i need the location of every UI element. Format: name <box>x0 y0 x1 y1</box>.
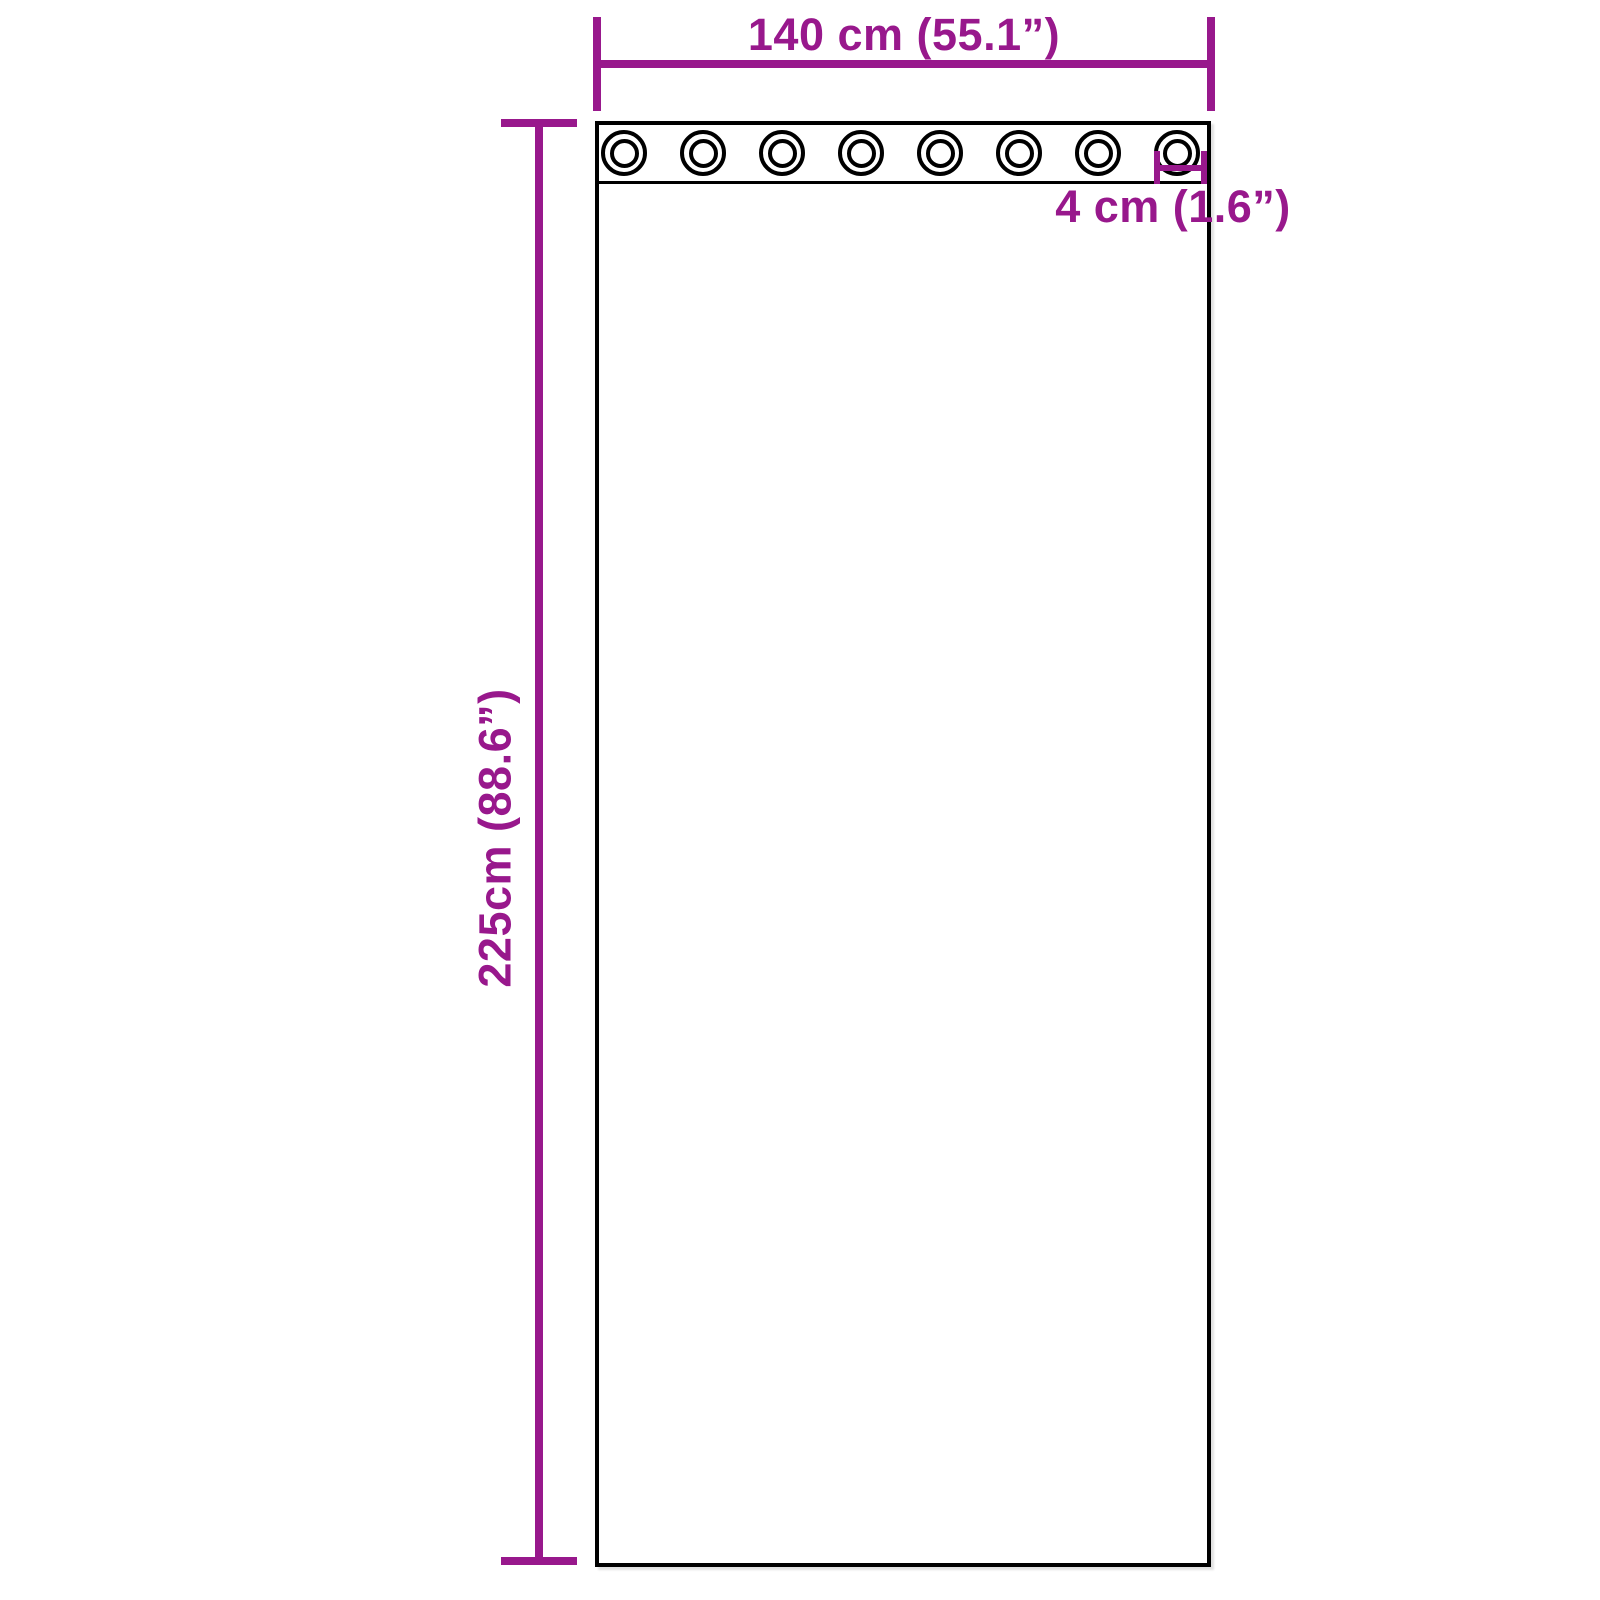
curtain-panel <box>595 121 1211 1567</box>
grommet-dimension-right-tick <box>1201 151 1207 184</box>
grommet-hole <box>689 139 718 168</box>
grommet-hole <box>1163 139 1192 168</box>
height-dimension-top-cap <box>501 119 577 127</box>
grommet-hole <box>1084 139 1113 168</box>
width-dimension-right-cap <box>1207 17 1215 111</box>
grommet-hole <box>768 139 797 168</box>
grommet-hole <box>847 139 876 168</box>
grommet-icon <box>996 130 1042 176</box>
height-dimension-line <box>535 121 543 1565</box>
grommet-row <box>599 130 1207 176</box>
width-dimension-label: 140 cm (55.1”) <box>597 12 1211 57</box>
grommet-icon <box>1075 130 1121 176</box>
grommet-dimension-line <box>1157 165 1204 171</box>
grommet-hole <box>610 139 639 168</box>
grommet-icon <box>680 130 726 176</box>
width-dimension-left-cap <box>593 17 601 111</box>
height-dimension-bottom-cap <box>501 1557 577 1565</box>
height-dimension-label: 225cm (88.6”) <box>473 688 518 987</box>
width-dimension-line <box>597 60 1211 68</box>
grommet-dimension-label: 4 cm (1.6”) <box>1055 184 1291 229</box>
grommet-hole <box>926 139 955 168</box>
grommet-icon <box>838 130 884 176</box>
grommet-hole <box>1005 139 1034 168</box>
curtain-dimension-diagram: 140 cm (55.1”) 225cm (88.6”) 4 cm (1.6”) <box>0 0 1600 1600</box>
grommet-icon <box>759 130 805 176</box>
grommet-dimension-left-tick <box>1154 151 1160 184</box>
grommet-icon <box>917 130 963 176</box>
grommet-icon <box>601 130 647 176</box>
